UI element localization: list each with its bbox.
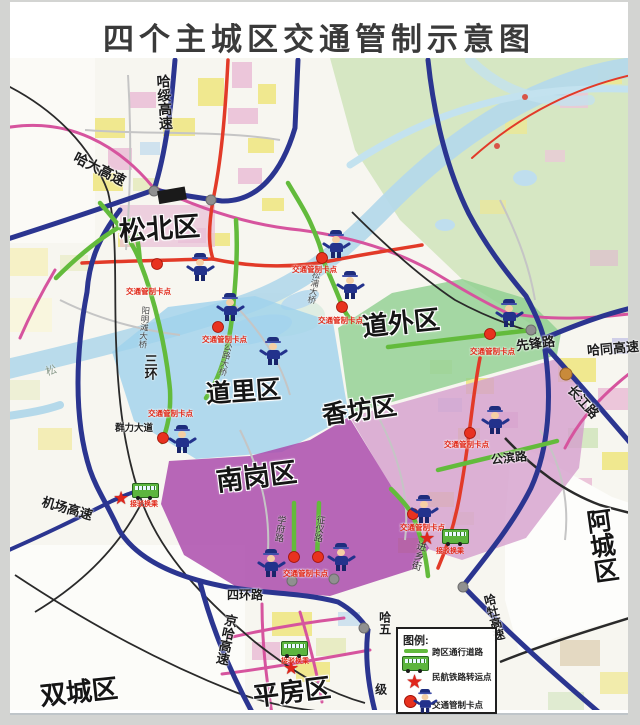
road-label-fourth-ring: 四环路	[227, 589, 263, 602]
legend-item-cross-district-road: 跨区通行道路	[432, 646, 483, 658]
legend-title: 图例:	[403, 632, 429, 648]
police-officer-icon	[418, 689, 432, 712]
police-officer-icon	[263, 549, 279, 576]
police-officer-icon	[501, 299, 517, 326]
police-officer-icon	[265, 337, 281, 364]
checkpoint-label: 交通管制卡点	[444, 439, 489, 450]
district-label-songbei: 松北区	[118, 212, 201, 246]
road-label-third-ring: 三环	[143, 354, 157, 396]
screenshot-page: 四个主城区交通管制示意图	[0, 0, 640, 725]
transfer-label: 接驳换乘	[436, 546, 464, 556]
road-label-hatong-expressway: 哈同高速	[587, 340, 640, 358]
legend-item-transfer-point: 民航铁路转运点	[432, 671, 492, 683]
transfer-star-icon: ★	[113, 489, 129, 507]
checkpoint-label: 交通管制卡点	[470, 346, 515, 357]
transfer-star-icon: ★	[419, 529, 435, 547]
police-officer-icon	[342, 271, 358, 298]
shuttle-bus-icon	[132, 483, 159, 498]
police-officer-icon	[174, 425, 190, 452]
checkpoint-label: 交通管制卡点	[318, 315, 363, 326]
transfer-star-icon: ★	[283, 659, 299, 677]
road-label-qunli-avenue: 群力大道	[115, 424, 153, 434]
police-officer-icon	[333, 543, 349, 570]
page-title: 四个主城区交通管制示意图	[10, 14, 628, 59]
police-officer-icon	[222, 293, 238, 320]
road-label-hawu-upper: 哈五	[378, 611, 391, 655]
police-officer-icon	[328, 230, 344, 257]
shuttle-bus-icon	[402, 656, 429, 671]
checkpoint-label: 交通管制卡点	[148, 408, 193, 419]
shuttle-bus-icon	[442, 529, 469, 544]
road-label-hawu-lower: 级	[374, 683, 387, 701]
police-officer-icon	[416, 495, 432, 522]
transfer-label: 接驳换乘	[130, 499, 158, 509]
district-label-daoli: 道里区	[205, 376, 282, 407]
checkpoint-label: 交通管制卡点	[283, 568, 328, 579]
legend-green-road-swatch	[404, 649, 428, 653]
police-officer-icon	[192, 253, 208, 280]
checkpoint-label: 交通管制卡点	[202, 334, 247, 345]
legend-item-checkpoint: 交通管制卡点	[432, 699, 483, 711]
checkpoint-label: 交通管制卡点	[292, 264, 337, 275]
checkpoint-label: 交通管制卡点	[126, 286, 171, 297]
map-legend: 图例: 跨区通行道路 ★ 民航铁路转运点 交通管制卡点	[396, 627, 497, 714]
police-officer-icon	[487, 406, 503, 433]
city-map	[10, 58, 628, 710]
shuttle-bus-icon	[281, 641, 308, 656]
